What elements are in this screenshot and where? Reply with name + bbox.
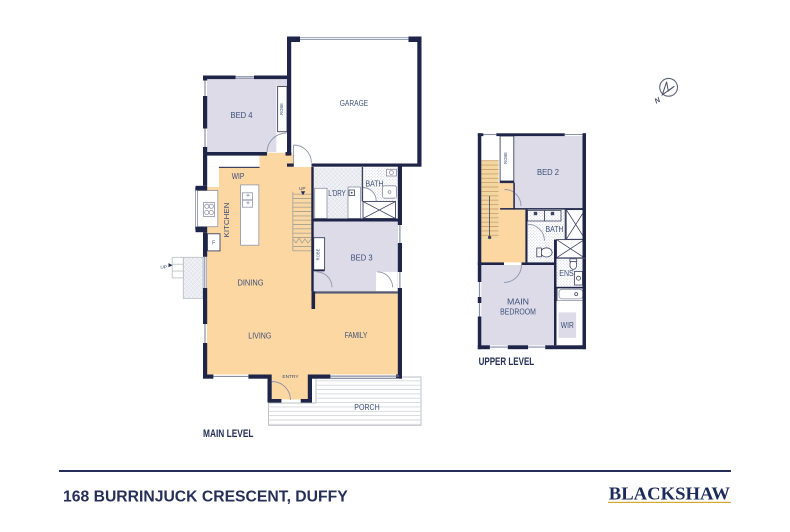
svg-text:BATH: BATH — [366, 179, 384, 188]
svg-text:L'DRY: L'DRY — [328, 189, 346, 198]
svg-text:MAIN: MAIN — [507, 297, 529, 306]
svg-text:UP: UP — [160, 264, 167, 270]
svg-text:ROBE: ROBE — [315, 248, 320, 260]
svg-text:PORCH: PORCH — [354, 403, 380, 412]
svg-text:UPPER LEVEL: UPPER LEVEL — [479, 356, 535, 368]
svg-text:DINING: DINING — [238, 279, 264, 288]
svg-text:WIP: WIP — [232, 172, 245, 181]
svg-text:ROBE: ROBE — [503, 152, 508, 164]
svg-text:BATH: BATH — [546, 225, 564, 234]
svg-text:GARAGE: GARAGE — [340, 99, 369, 108]
svg-text:BED 4: BED 4 — [231, 111, 254, 120]
svg-text:ROBE: ROBE — [279, 103, 284, 115]
svg-text:FAMILY: FAMILY — [345, 331, 368, 340]
svg-text:BLACKSHAW: BLACKSHAW — [609, 484, 730, 504]
svg-text:KITCHEN: KITCHEN — [222, 203, 231, 238]
svg-text:F: F — [212, 241, 215, 247]
svg-text:BEDROOM: BEDROOM — [500, 307, 536, 316]
svg-text:BED 2: BED 2 — [537, 168, 559, 177]
svg-text:ENTRY: ENTRY — [282, 374, 299, 380]
svg-text:MAIN LEVEL: MAIN LEVEL — [203, 428, 254, 440]
svg-text:ENS: ENS — [559, 269, 574, 278]
svg-text:BED 3: BED 3 — [351, 254, 373, 263]
svg-text:168 BURRINJUCK CRESCENT, DUFFY: 168 BURRINJUCK CRESCENT, DUFFY — [63, 488, 348, 505]
svg-text:UP: UP — [299, 186, 306, 192]
svg-text:WIR: WIR — [561, 321, 574, 330]
svg-text:LIVING: LIVING — [248, 332, 271, 341]
